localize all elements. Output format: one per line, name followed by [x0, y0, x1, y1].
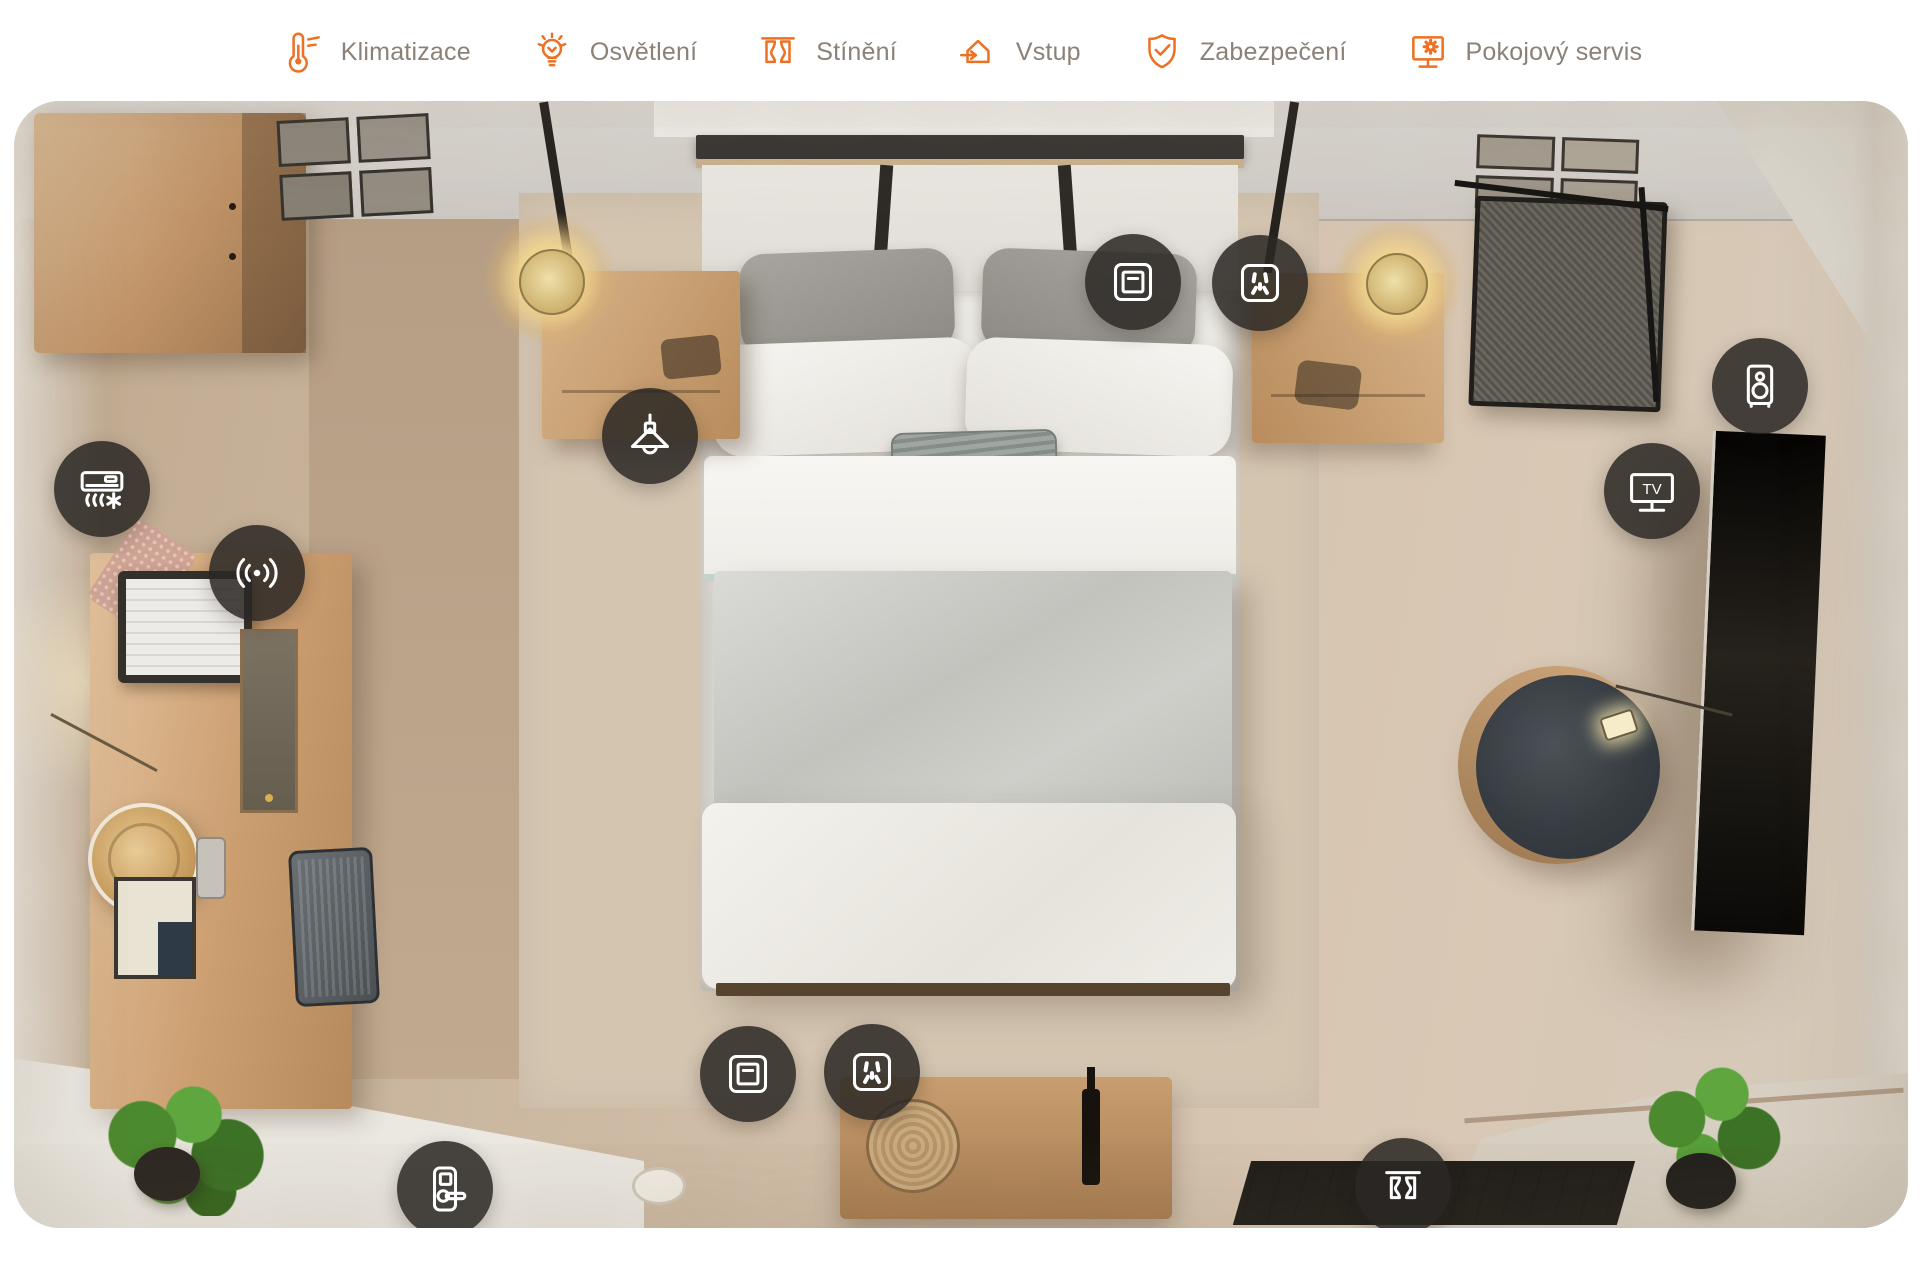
plant-pot-right: [1666, 1153, 1736, 1209]
bed-headboard-beam: [696, 135, 1244, 159]
nightstand-tray-right: [1294, 359, 1363, 410]
lightbulb-icon: [529, 29, 575, 75]
phone-on-desk: [196, 837, 226, 899]
hotspot-light-switch-bedside[interactable]: [1085, 234, 1181, 330]
picture-frame: [279, 171, 353, 221]
picture-frame: [1476, 134, 1555, 170]
light-switch-icon: [720, 1046, 776, 1102]
bed-duvet: [702, 803, 1236, 989]
wardrobe-knob: [229, 253, 236, 260]
menu-item-entry[interactable]: Vstup: [955, 29, 1081, 75]
laundry-basket: [1468, 196, 1667, 413]
menu-item-climate[interactable]: Klimatizace: [280, 29, 471, 75]
hotspot-curtains[interactable]: [1355, 1138, 1451, 1228]
mirror-column: [240, 629, 298, 813]
signal-icon: [229, 545, 285, 601]
menu-item-label: Vstup: [1016, 38, 1081, 67]
hotspot-speaker[interactable]: [1712, 338, 1808, 434]
thermometer-icon: [280, 29, 326, 75]
shield-check-icon: [1139, 29, 1185, 75]
small-dish: [632, 1167, 686, 1205]
table-lamp-left: [519, 249, 585, 315]
power-socket-icon: [1232, 255, 1288, 311]
power-socket-icon: [844, 1044, 900, 1100]
mirror-knob: [265, 794, 273, 802]
table-lamp-right: [1366, 253, 1428, 315]
light-switch-icon: [1105, 254, 1161, 310]
curtains-icon: [1375, 1158, 1431, 1214]
bed-blanket: [714, 571, 1232, 813]
speaker-icon: [1732, 358, 1788, 414]
menu-item-shading[interactable]: Stínění: [755, 29, 897, 75]
wine-bottle: [1082, 1089, 1100, 1185]
hotspot-television[interactable]: TV: [1604, 443, 1700, 539]
menu-item-label: Pokojový servis: [1466, 38, 1643, 67]
hotspot-air-conditioning[interactable]: [54, 441, 150, 537]
menu-item-room-service[interactable]: Pokojový servis: [1405, 29, 1643, 75]
hotspot-pendant-light[interactable]: [602, 388, 698, 484]
framed-print: [114, 877, 196, 979]
tv-icon-label: TV: [1642, 481, 1662, 498]
menu-item-lighting[interactable]: Osvětlení: [529, 29, 697, 75]
menu-item-label: Osvětlení: [590, 38, 697, 67]
nightstand-tray-left: [660, 334, 722, 380]
hotspot-door-lock[interactable]: [397, 1141, 493, 1228]
hotspot-power-socket-entry[interactable]: [824, 1024, 920, 1120]
air-conditioner-icon: [74, 461, 130, 517]
bottle-neck: [1087, 1067, 1095, 1091]
wall-right: [1852, 101, 1908, 1228]
picture-frame: [356, 113, 430, 163]
print-artwork: [158, 922, 192, 975]
bed-sheet-fold: [704, 456, 1236, 581]
picture-frame: [276, 117, 350, 167]
room-floorplan-image: TV: [14, 101, 1908, 1228]
door-lock-icon: [417, 1161, 473, 1217]
picture-frame: [359, 167, 433, 217]
smart-room-control-menu: Klimatizace Osvětlení Stínění: [0, 14, 1922, 90]
wardrobe-knob: [229, 203, 236, 210]
hotspot-power-socket-bedside[interactable]: [1212, 235, 1308, 331]
menu-item-security[interactable]: Zabezpečení: [1139, 29, 1347, 75]
picture-frames-top-left: [276, 113, 433, 221]
menu-item-label: Klimatizace: [341, 38, 471, 67]
chair-mesh: [297, 856, 370, 997]
curtains-icon: [755, 29, 801, 75]
house-enter-icon: [955, 29, 1001, 75]
bed-foot-rail: [716, 983, 1230, 996]
wardrobe-top-left: [34, 113, 306, 353]
canopy-top-panel: [654, 101, 1274, 137]
service-screen-icon: [1405, 29, 1451, 75]
pendant-lamp-icon: [622, 408, 678, 464]
tv-icon: TV: [1624, 463, 1680, 519]
menu-item-label: Zabezpečení: [1200, 38, 1347, 67]
tv-screen: [1691, 431, 1826, 935]
menu-item-label: Stínění: [816, 38, 897, 67]
hotspot-light-switch-entry[interactable]: [700, 1026, 796, 1122]
hotspot-wireless-sensor[interactable]: [209, 525, 305, 621]
ottoman-seat: [1476, 675, 1660, 859]
desk-chair-dark: [288, 847, 380, 1007]
picture-frame: [1561, 137, 1640, 173]
plant-pot-left: [134, 1147, 200, 1201]
